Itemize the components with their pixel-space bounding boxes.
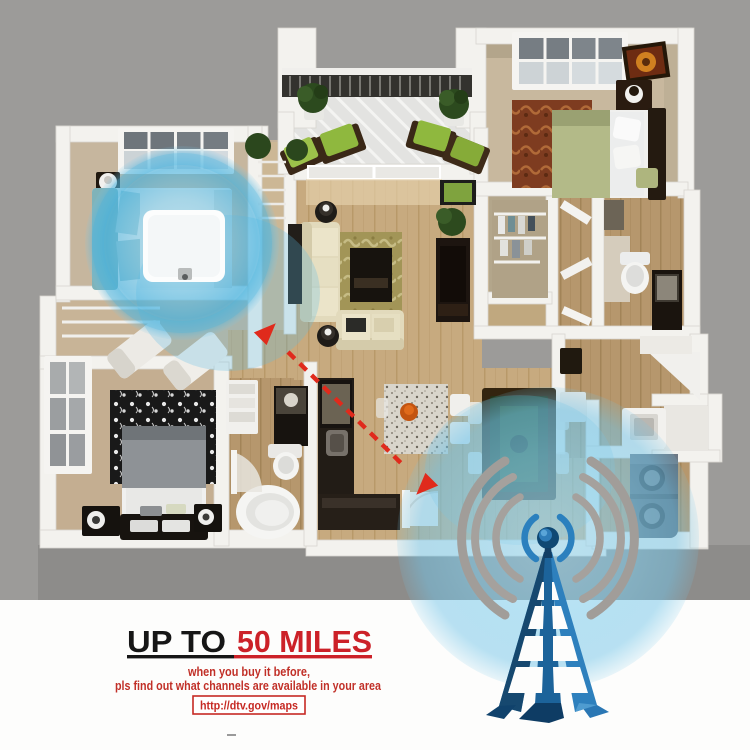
svg-text:when you buy it before,: when you buy it before, [187,665,310,679]
svg-text:UP TO: UP TO [127,624,226,659]
svg-text:http://dtv.gov/maps: http://dtv.gov/maps [200,699,298,713]
svg-text:50 MILES: 50 MILES [237,624,372,659]
svg-text:pls find out what channels are: pls find out what channels are available… [115,679,382,693]
